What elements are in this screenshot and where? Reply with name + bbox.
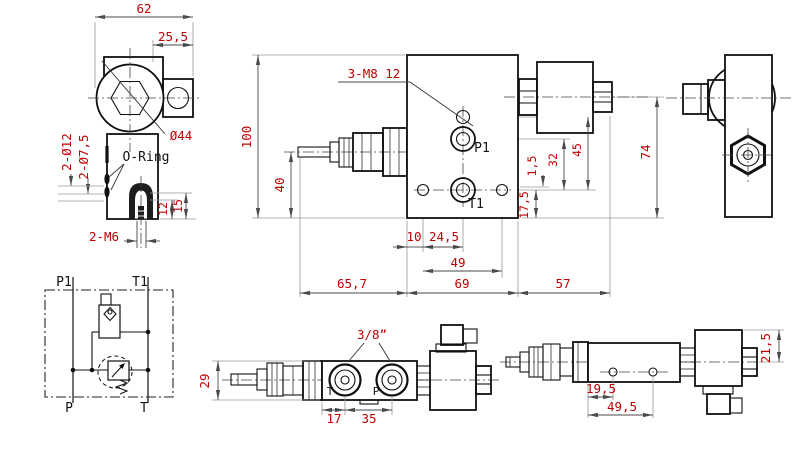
hydraulic-schematic: P1 T1 P T xyxy=(45,275,173,416)
relief-spring xyxy=(116,380,127,394)
valve-block xyxy=(407,55,518,218)
dim-49-label: 49 xyxy=(450,255,465,270)
drawing-canvas: 62 25,5 Ø44 O-Ring 2-Ø12 2-Ø7,5 xyxy=(0,0,800,450)
m6-label: 2-M6 xyxy=(89,229,119,244)
dim-65-7-label: 65,7 xyxy=(337,276,367,291)
port-p-hole xyxy=(377,365,408,396)
dim-15-label: 15 xyxy=(171,199,185,213)
screw-stem-b xyxy=(231,374,257,385)
dim-100-label: 100 xyxy=(239,126,254,149)
port-t1-label: T1 xyxy=(468,197,484,212)
dim-40-label: 40 xyxy=(272,177,287,192)
dim-32-label: 32 xyxy=(546,153,560,167)
connector-plug xyxy=(441,325,463,345)
o-ring-1 xyxy=(104,174,109,185)
schematic-p1-label: P1 xyxy=(56,275,72,290)
dia-44-label: Ø44 xyxy=(170,128,193,143)
holes-2d75-label: 2-Ø7,5 xyxy=(76,134,91,179)
front-view: 100 40 P1 T1 3-M8 12 xyxy=(239,55,664,297)
dim-62-label: 62 xyxy=(136,1,151,16)
m8-thread-label: 3-M8 12 xyxy=(348,66,401,81)
top-view: 62 25,5 Ø44 O-Ring 2-Ø12 2-Ø7,5 xyxy=(58,1,200,248)
dim-19-5-label: 19,5 xyxy=(586,381,616,396)
dim-12-label: 12 xyxy=(156,202,170,216)
bottom-view: T P 29 3/8” 17 35 xyxy=(197,325,502,426)
dim-45-label: 45 xyxy=(570,143,584,157)
holes-2d12-label: 2-Ø12 xyxy=(59,133,74,171)
dim-17-label: 17 xyxy=(326,411,341,426)
side-view-right xyxy=(666,55,792,217)
port-t-hole xyxy=(330,365,361,396)
dim-57-label: 57 xyxy=(555,276,570,291)
check-valve-pilot xyxy=(101,294,111,305)
dim-35-label: 35 xyxy=(361,411,376,426)
schematic-t1-label: T1 xyxy=(132,275,148,290)
solenoid-coil xyxy=(537,62,593,133)
valve-technical-drawing: 62 25,5 Ø44 O-Ring 2-Ø12 2-Ø7,5 xyxy=(0,0,800,450)
dim-25-5-label: 25,5 xyxy=(158,29,188,44)
oring-label: O-Ring xyxy=(123,150,170,165)
dim-10-label: 10 xyxy=(406,229,421,244)
o-ring-2 xyxy=(104,187,109,198)
dim-49-5-label: 49,5 xyxy=(607,399,637,414)
dim-69-label: 69 xyxy=(454,276,469,291)
dim-17-5-label: 17,5 xyxy=(517,191,531,219)
port-p1-label: P1 xyxy=(474,141,490,156)
side-view-bottom-right: 19,5 49,5 21,5 xyxy=(500,330,784,418)
dim-29-label: 29 xyxy=(197,373,212,388)
coil-side-view xyxy=(695,330,742,386)
dim-1-5-label: 1,5 xyxy=(525,156,539,177)
dim-74-label: 74 xyxy=(638,144,653,159)
connector-plug-2 xyxy=(707,394,730,414)
coil-bottom-view xyxy=(430,351,476,410)
valve-body-side xyxy=(588,343,680,382)
dim-24-5-label: 24,5 xyxy=(429,229,459,244)
connector-stub xyxy=(683,84,708,114)
schematic-p-label: P xyxy=(65,401,73,416)
dim-21-5-label: 21,5 xyxy=(758,333,773,363)
port-p-label: P xyxy=(373,385,380,398)
thread-3-8-label: 3/8” xyxy=(357,327,387,342)
thread-section xyxy=(417,366,430,395)
port-t-label: T xyxy=(327,385,334,398)
schematic-t-label: T xyxy=(140,401,148,416)
